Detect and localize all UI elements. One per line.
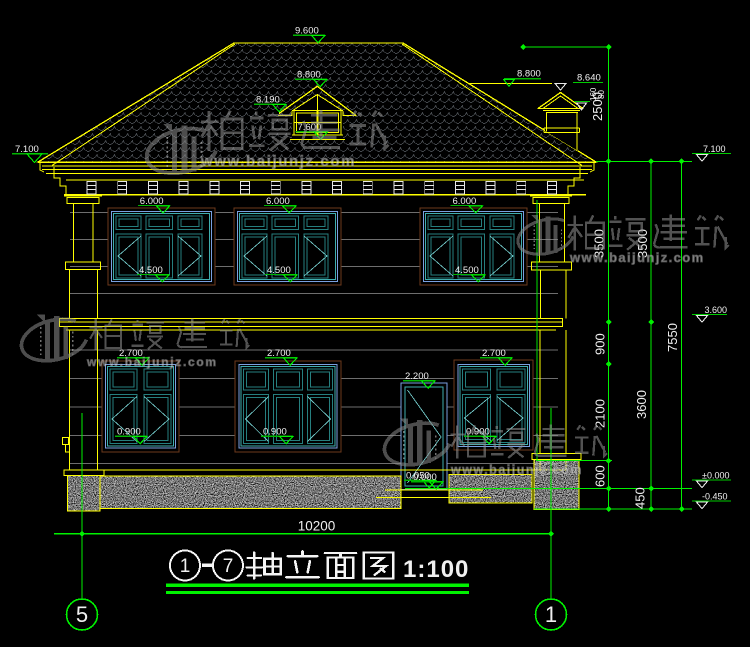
svg-text:www.baijunjz.com: www.baijunjz.com: [86, 355, 218, 369]
svg-text:450: 450: [633, 487, 648, 509]
svg-text:1: 1: [545, 602, 557, 627]
svg-text:80: 80: [597, 90, 606, 99]
svg-text:10200: 10200: [298, 519, 336, 534]
svg-text:±0.000: ±0.000: [702, 470, 729, 480]
svg-text:2100: 2100: [593, 399, 608, 428]
svg-text:-0.450: -0.450: [702, 491, 728, 501]
svg-text:7: 7: [223, 556, 234, 577]
svg-text:www.baijunjz.com: www.baijunjz.com: [569, 250, 705, 265]
svg-text:5: 5: [76, 602, 88, 627]
svg-text:www.baijunjz.com: www.baijunjz.com: [200, 153, 356, 170]
svg-text:3.600: 3.600: [705, 305, 728, 315]
svg-text:900: 900: [593, 333, 608, 355]
svg-text:7550: 7550: [665, 323, 680, 352]
svg-text:600: 600: [593, 465, 608, 487]
svg-text:8.800: 8.800: [517, 69, 541, 80]
svg-text:3600: 3600: [634, 390, 649, 419]
svg-text:7.100: 7.100: [703, 144, 726, 154]
svg-text:www.baijunjz.com: www.baijunjz.com: [450, 463, 583, 477]
svg-text:1: 1: [180, 556, 191, 577]
svg-text:1:100: 1:100: [403, 556, 469, 583]
